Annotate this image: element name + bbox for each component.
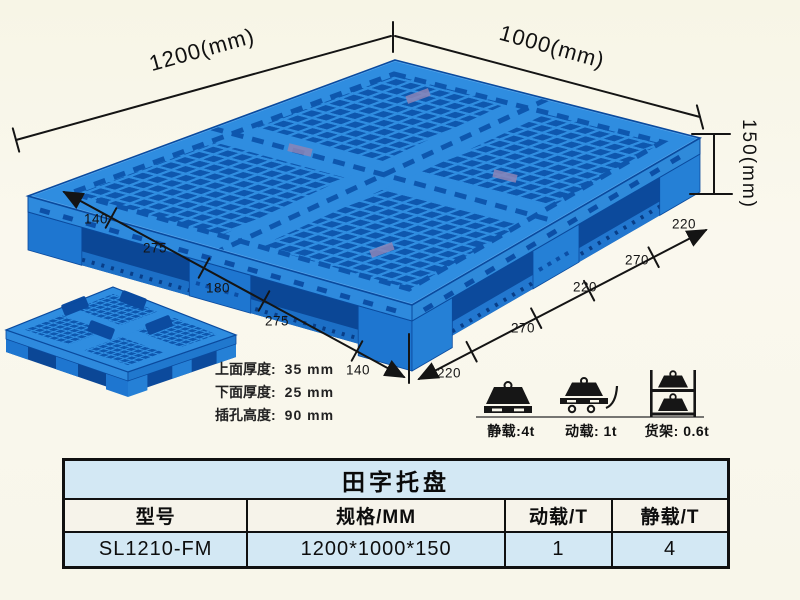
dim-seg-left-1: 140	[84, 212, 108, 227]
note-value: 25 mm	[285, 384, 334, 400]
header-model: 型号	[65, 500, 248, 531]
dim-seg-left-3: 180	[206, 281, 230, 296]
dim-seg-right-2: 270	[511, 321, 535, 336]
dim-seg-right-4: 270	[625, 253, 649, 268]
dim-seg-right-3: 220	[573, 280, 597, 295]
dim-seg-left-5: 140	[346, 363, 370, 378]
note-value: 90 mm	[285, 407, 334, 423]
dynamic-load-icon	[560, 378, 617, 412]
dim-seg-right-1: 220	[437, 366, 461, 381]
thickness-notes: 上面厚度:35 mm 下面厚度:25 mm 插孔高度:90 mm	[215, 358, 334, 427]
note-label: 下面厚度:	[215, 384, 276, 400]
rack-load-icon	[650, 370, 696, 417]
rack-load-label: 货架: 0.6t	[645, 421, 710, 441]
header-spec: 规格/MM	[248, 500, 506, 531]
cell-dynamic-load: 1	[506, 533, 613, 566]
cell-static-load: 4	[613, 533, 727, 566]
header-static-load: 静载/T	[613, 500, 727, 531]
dynamic-load-label: 动载: 1t	[565, 421, 617, 441]
spec-table: 田字托盘 型号 规格/MM 动载/T 静载/T SL1210-FM 1200*1…	[62, 458, 730, 569]
note-label: 插孔高度:	[215, 407, 276, 423]
pallet-spec-sheet: 1200(mm) 1000(mm) 150(mm) 140 275 180 27…	[0, 0, 800, 600]
static-load-label: 静载:4t	[487, 421, 535, 441]
note-label: 上面厚度:	[215, 361, 276, 377]
load-capacity-icons	[476, 370, 704, 417]
table-header-row: 型号 规格/MM 动载/T 静载/T	[65, 500, 727, 533]
note-top-thickness: 上面厚度:35 mm	[215, 358, 334, 381]
table-title: 田字托盘	[65, 461, 727, 500]
dim-seg-right-5: 220	[672, 217, 696, 232]
static-load-icon	[484, 382, 532, 413]
note-value: 35 mm	[285, 361, 334, 377]
dim-seg-left-2: 275	[143, 241, 167, 256]
dim-label-height: 150(mm)	[737, 119, 759, 209]
cell-spec: 1200*1000*150	[248, 533, 506, 566]
note-fork-height: 插孔高度:90 mm	[215, 404, 334, 427]
dim-seg-left-4: 275	[265, 314, 289, 329]
header-dynamic-load: 动载/T	[506, 500, 613, 531]
inset-pallet-illustration	[6, 287, 236, 397]
note-bottom-thickness: 下面厚度:25 mm	[215, 381, 334, 404]
table-data-row: SL1210-FM 1200*1000*150 1 4	[65, 533, 727, 566]
cell-model: SL1210-FM	[65, 533, 248, 566]
